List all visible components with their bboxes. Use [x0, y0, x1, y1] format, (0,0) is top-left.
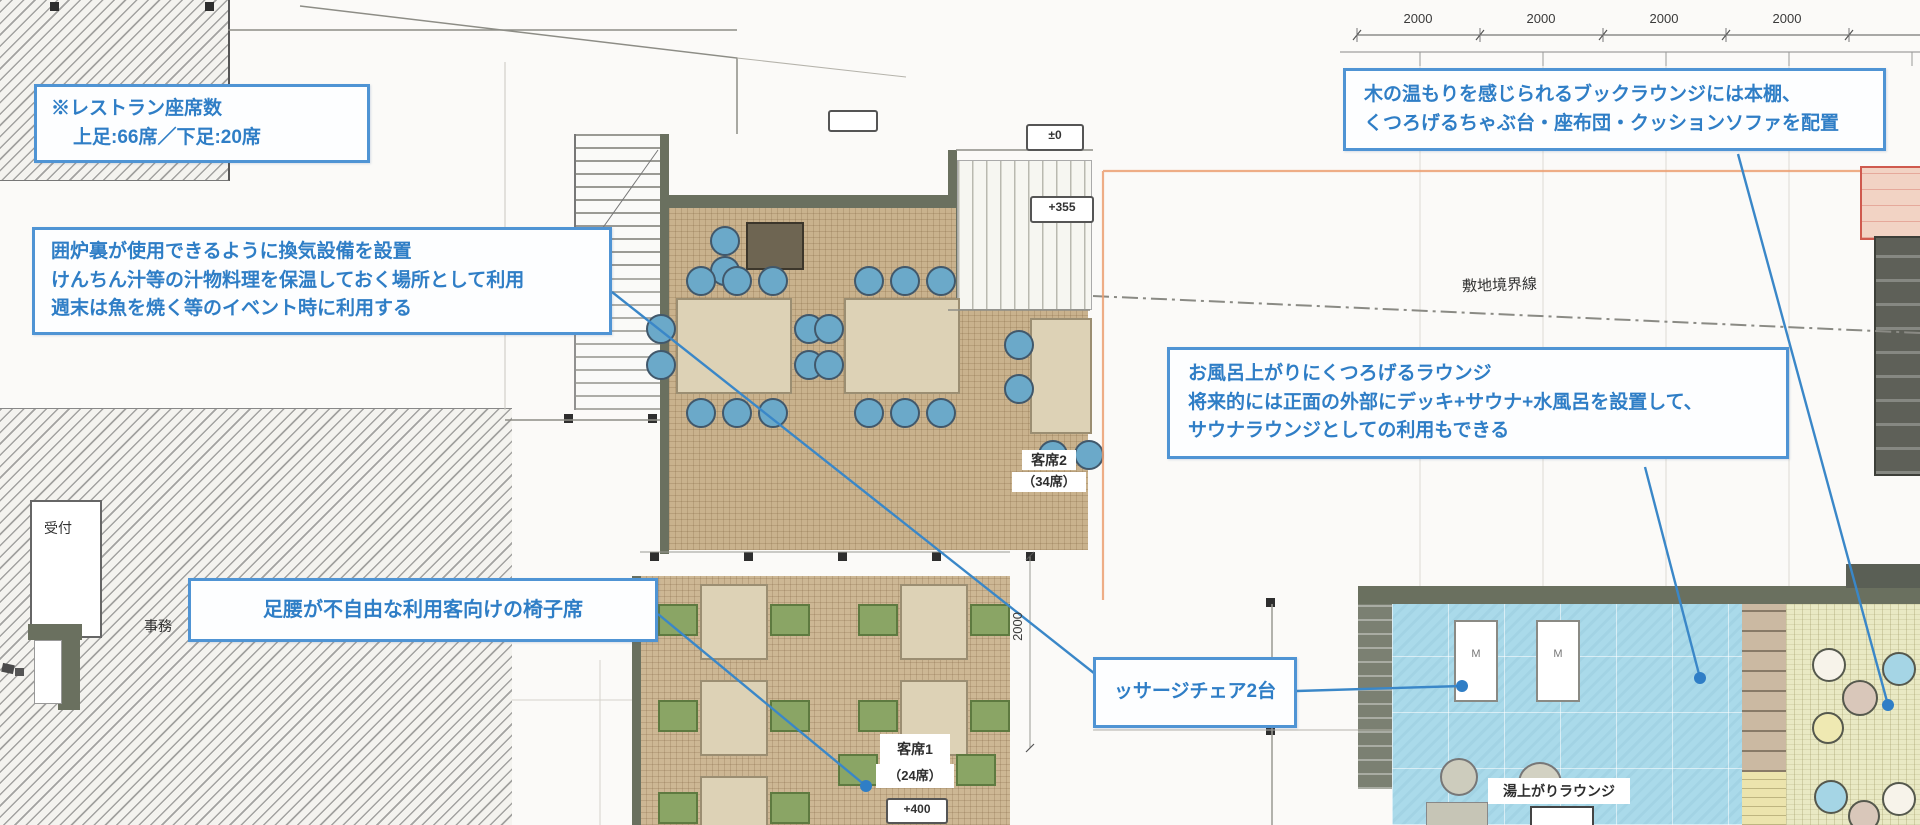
- dining-table: [1030, 318, 1092, 434]
- green-chair-symbol: [858, 604, 898, 636]
- floor-plan-canvas: M M: [0, 0, 1920, 825]
- blue-chair-symbol: [814, 350, 844, 380]
- cushion-symbol: [1848, 800, 1880, 825]
- green-chair-symbol: [770, 700, 810, 732]
- massage-chair-m-label: M: [1553, 648, 1562, 660]
- blue-chair-symbol: [854, 398, 884, 428]
- seating2-count-label: （34席）: [1012, 472, 1086, 492]
- column-marker: [1266, 598, 1275, 607]
- green-chair-symbol: [658, 700, 698, 732]
- adjacent-building-section: [1874, 236, 1920, 476]
- dark-wall-block: [1846, 564, 1920, 588]
- annotation-bath-lounge: お風呂上がりにくつろげるラウンジ 将来的には正面の外部にデッキ+サウナ+水風呂を…: [1167, 347, 1789, 459]
- office-label: 事務: [144, 616, 172, 636]
- restaurant-top-wall: [666, 195, 956, 208]
- annotation-line: 足腰が不自由な利用客向けの椅子席: [263, 595, 583, 625]
- annotation-line: 週末は魚を焼く等のイベント時に利用する: [51, 295, 593, 324]
- blue-chair-symbol: [1004, 374, 1034, 404]
- blue-chair-symbol: [758, 266, 788, 296]
- dining-table: [700, 680, 768, 756]
- annotation-line: 上足:66席／下足:20席: [51, 124, 353, 153]
- blue-chair-symbol: [890, 266, 920, 296]
- column-marker: [205, 2, 214, 11]
- level-marker-blank: [828, 110, 878, 132]
- blue-chair-symbol: [890, 398, 920, 428]
- blue-chair-symbol: [646, 350, 676, 380]
- annotation-line: サウナラウンジとしての利用もできる: [1188, 417, 1768, 446]
- annotation-book-lounge: 木の温もりを感じられるブックラウンジには本棚、 くつろげるちゃぶ台・座布団・クッ…: [1343, 68, 1886, 151]
- cushion-symbol: [1882, 782, 1916, 816]
- blue-chair-symbol: [758, 398, 788, 428]
- green-chair-symbol: [956, 754, 996, 786]
- dining-table: [700, 776, 768, 825]
- annotation-line: 木の温もりを感じられるブックラウンジには本棚、: [1364, 81, 1865, 110]
- column-marker: [564, 414, 573, 423]
- column-marker: [648, 414, 657, 423]
- column-marker: [1026, 552, 1035, 561]
- column-marker: [650, 552, 659, 561]
- site-boundary-label: 敷地境界線: [1462, 273, 1538, 297]
- bath-top-wall: [1358, 586, 1920, 604]
- green-chair-symbol: [658, 604, 698, 636]
- blue-chair-symbol: [814, 314, 844, 344]
- green-chair-symbol: [858, 700, 898, 732]
- cushion-symbol: [1812, 648, 1846, 682]
- green-chair-symbol: [970, 700, 1010, 732]
- massage-chair-m-label: M: [1471, 648, 1480, 660]
- dimension-2000: 2000: [1646, 11, 1682, 26]
- dimension-2000-vertical: 2000: [1010, 612, 1025, 641]
- bath-left-wall: [1358, 604, 1392, 789]
- green-chair-symbol: [770, 792, 810, 824]
- office-room: [34, 640, 62, 704]
- dining-table: [844, 298, 960, 394]
- annotation-line: 囲炉裏が使用できるように換気設備を設置: [51, 238, 593, 267]
- exterior-deck: [957, 160, 1092, 310]
- annotation-chair-seats: 足腰が不自由な利用客向けの椅子席: [188, 578, 658, 642]
- office-wall-h: [28, 624, 82, 640]
- massage-chair: M: [1536, 620, 1580, 702]
- blue-chair-symbol: [926, 266, 956, 296]
- annotation-line: くつろげるちゃぶ台・座布団・クッションソファを配置: [1364, 110, 1865, 139]
- column-marker: [932, 552, 941, 561]
- blue-chair-symbol: [646, 314, 676, 344]
- annotation-restaurant-seats: ※レストラン座席数 上足:66席／下足:20席: [34, 84, 370, 163]
- green-chair-symbol: [970, 604, 1010, 636]
- level-marker-400: +400: [886, 798, 948, 824]
- illegible-label-fragment: [15, 668, 24, 676]
- cushion-symbol: [1814, 780, 1848, 814]
- blue-chair-symbol: [710, 226, 740, 256]
- annotation-massage-chairs: ッサージチェア2台: [1093, 657, 1297, 728]
- annotation-line: 将来的には正面の外部にデッキ+サウナ+水風呂を設置して、: [1188, 389, 1768, 418]
- annotation-line: けんちん汁等の汁物料理を保温しておく場所として利用: [51, 267, 593, 296]
- cushion-symbol: [1882, 652, 1916, 686]
- blue-chair-symbol: [926, 398, 956, 428]
- bath-lounge-label: 湯上がりラウンジ: [1488, 778, 1630, 804]
- blue-chair-symbol: [1074, 440, 1104, 470]
- annotation-irori: 囲炉裏が使用できるように換気設備を設置 けんちん汁等の汁物料理を保温しておく場所…: [32, 227, 612, 335]
- dining-table: [900, 584, 968, 660]
- cushion-symbol: [1842, 680, 1878, 716]
- annotation-line: ッサージチェア2台: [1114, 678, 1276, 707]
- massage-chair: M: [1454, 620, 1498, 702]
- blue-chair-symbol: [854, 266, 884, 296]
- level-marker-355: +355: [1030, 196, 1094, 223]
- annotation-line: お風呂上がりにくつろげるラウンジ: [1188, 360, 1768, 389]
- dining-table: [676, 298, 792, 394]
- column-marker: [744, 552, 753, 561]
- blue-chair-symbol: [722, 266, 752, 296]
- column-marker: [50, 2, 59, 11]
- annotation-line: ※レストラン座席数: [51, 95, 353, 124]
- green-chair-symbol: [770, 604, 810, 636]
- engawa-strip: [1742, 772, 1786, 825]
- level-marker-0: ±0: [1026, 124, 1084, 151]
- irori-hearth-table: [746, 222, 804, 270]
- seating2-label: 客席2: [1022, 450, 1076, 470]
- seating1-label: 客席1: [880, 734, 950, 764]
- dimension-2000: 2000: [1400, 11, 1436, 26]
- reception-label: 受付: [44, 518, 72, 538]
- bench-symbol: [1426, 802, 1488, 825]
- site-boundary-box: [1860, 166, 1920, 240]
- blue-chair-symbol: [1004, 330, 1034, 360]
- green-chair-symbol: [658, 792, 698, 824]
- column-marker: [838, 552, 847, 561]
- dimension-2000: 2000: [1523, 11, 1559, 26]
- stool-symbol: [1440, 758, 1478, 796]
- cushion-symbol: [1812, 712, 1844, 744]
- green-chair-symbol: [838, 754, 878, 786]
- dining-table: [700, 584, 768, 660]
- bath-lounge-count-box: [1530, 806, 1594, 825]
- blue-chair-symbol: [686, 398, 716, 428]
- blue-chair-symbol: [722, 398, 752, 428]
- dimension-2000: 2000: [1769, 11, 1805, 26]
- blue-chair-symbol: [686, 266, 716, 296]
- book-lounge-wall: [1742, 604, 1786, 772]
- seating1-count-label: （24席）: [876, 764, 954, 788]
